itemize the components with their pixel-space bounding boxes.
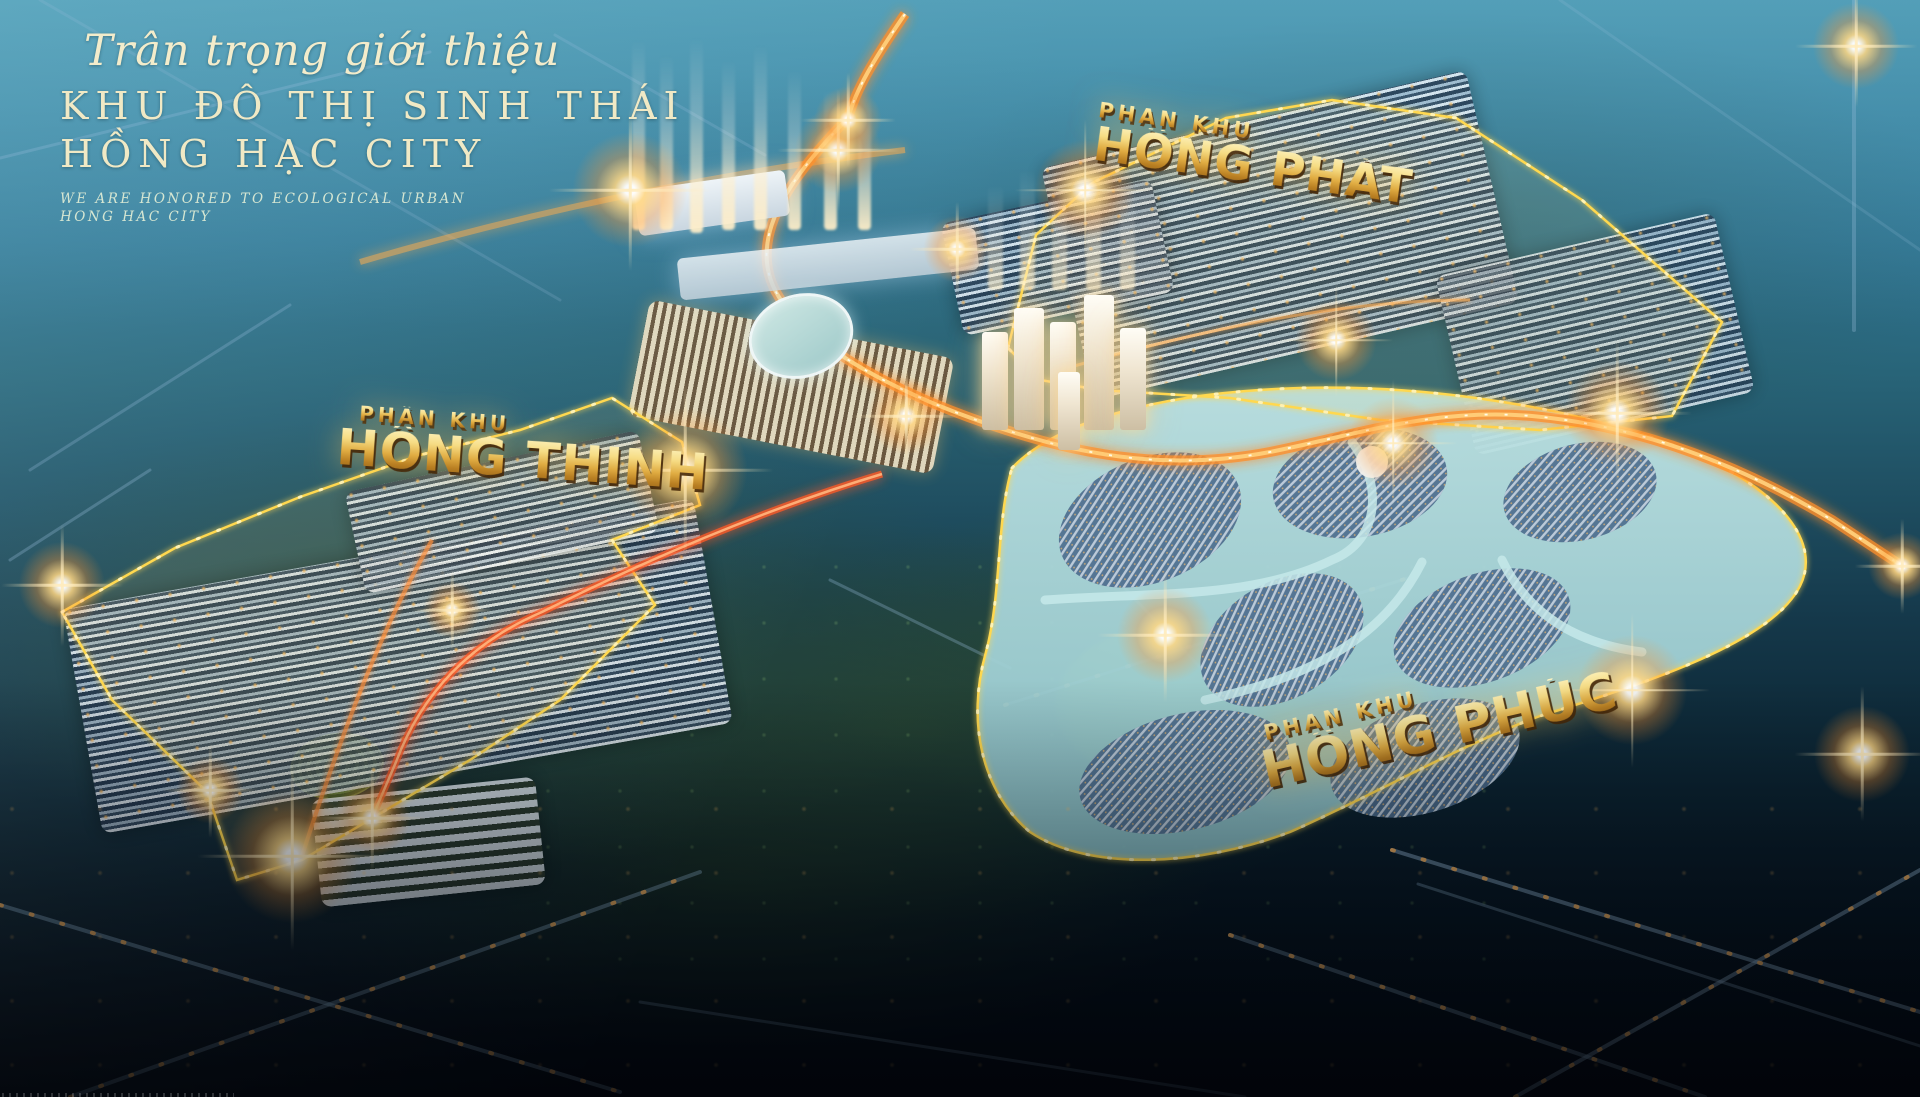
footer-watermark-partial bbox=[2, 1093, 234, 1097]
masterplan-canvas: PHÂN KHU HỒNG PHÁT PHÂN KHU HỒNG THINH P… bbox=[0, 0, 1920, 1097]
bottom-vignette bbox=[0, 0, 1920, 1097]
